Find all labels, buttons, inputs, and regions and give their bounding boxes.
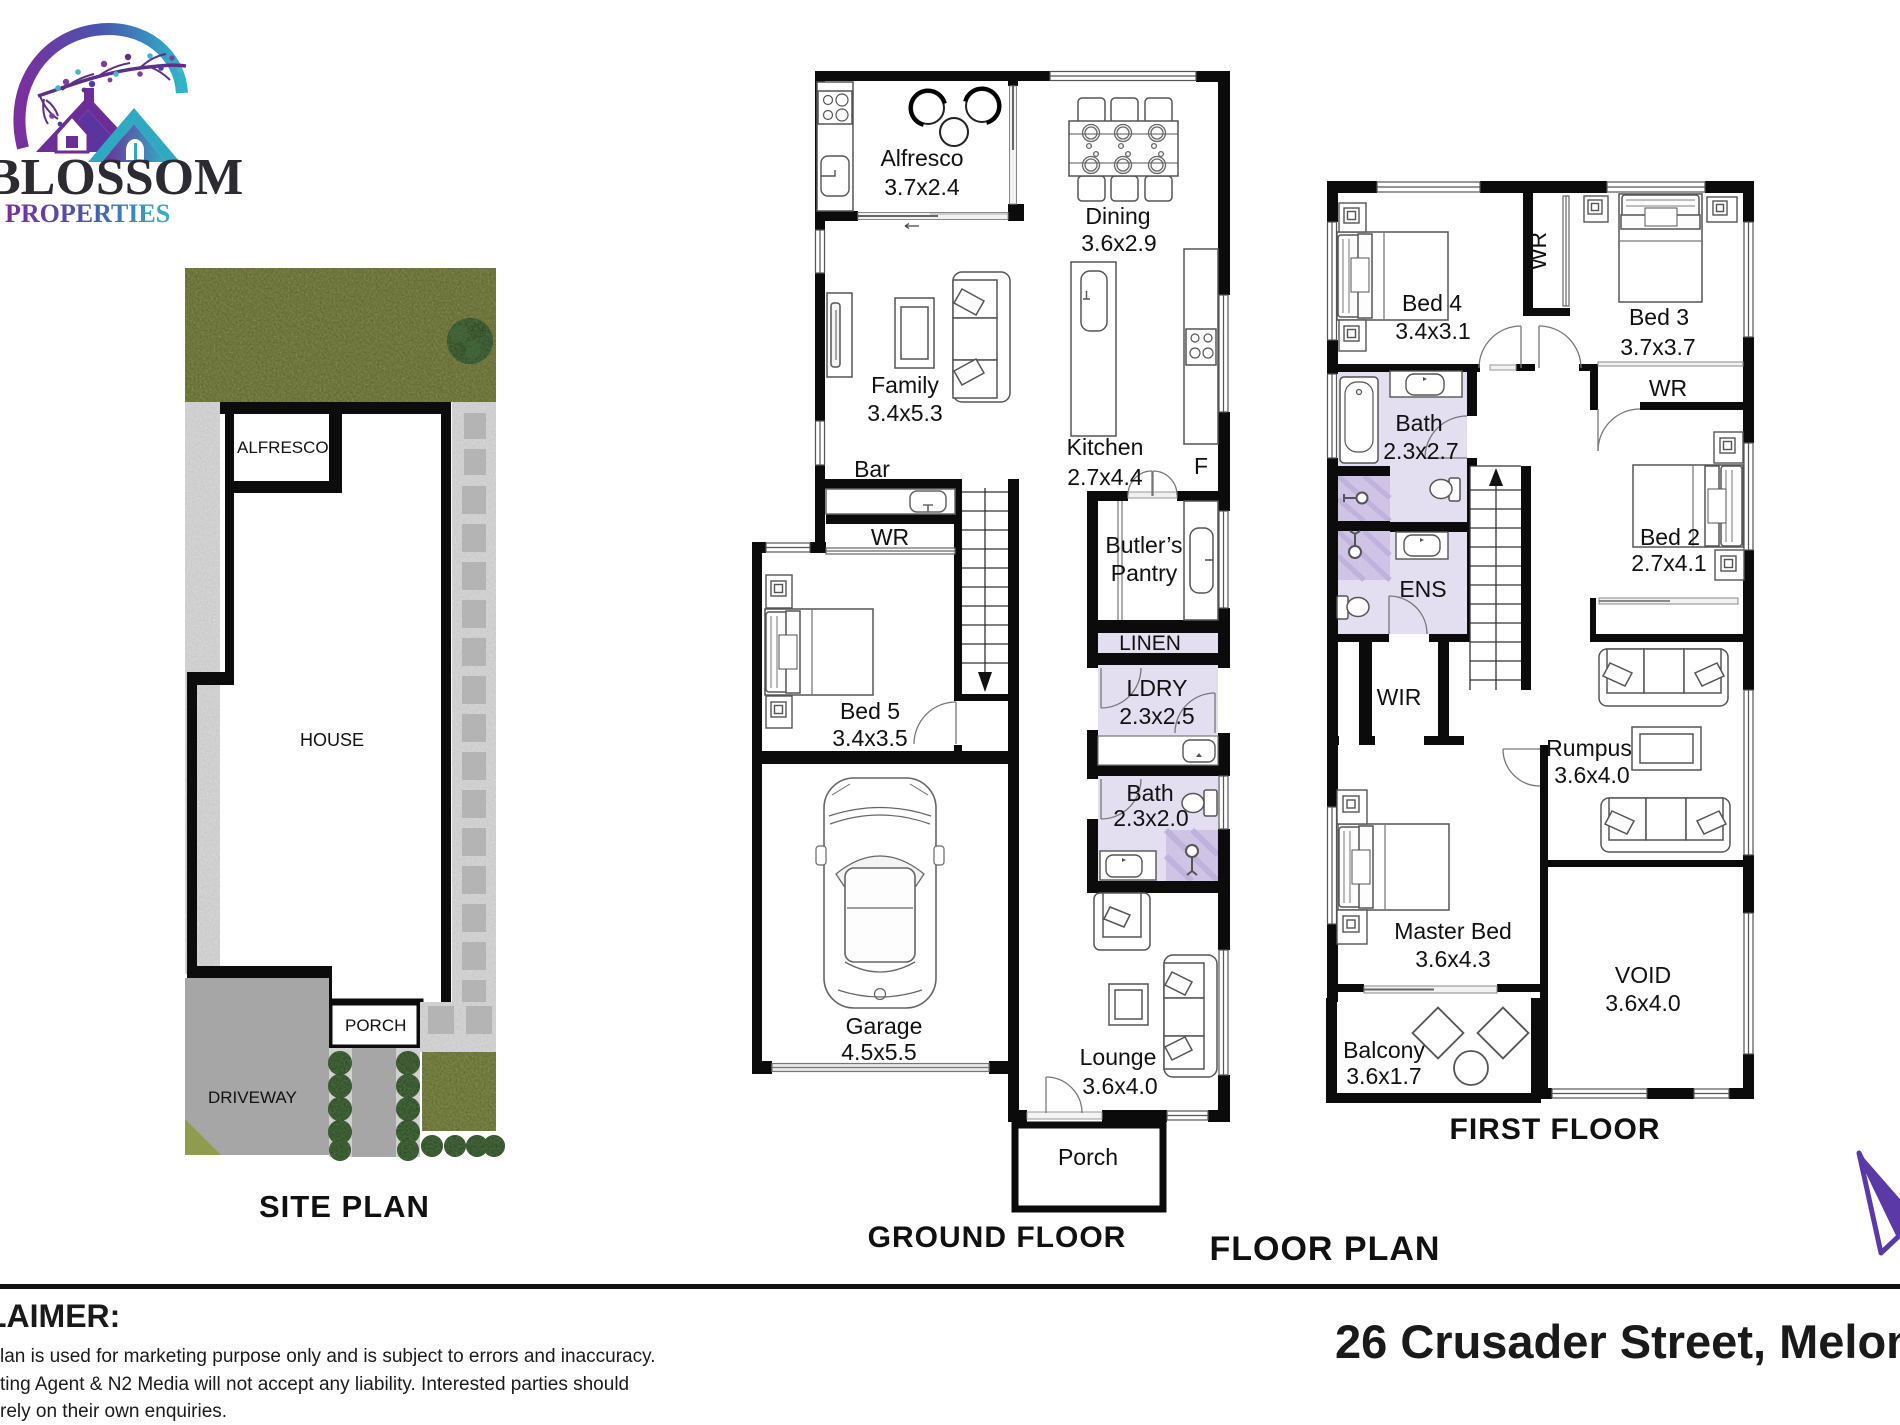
svg-text:Bar: Bar xyxy=(854,456,890,482)
svg-text:Garage: Garage xyxy=(846,1013,923,1039)
svg-text:3.7x2.4: 3.7x2.4 xyxy=(884,174,960,200)
svg-text:BLOSSOM: BLOSSOM xyxy=(0,149,243,206)
svg-text:WR: WR xyxy=(1649,375,1687,401)
svg-text:26 Crusader Street, Melonba: 26 Crusader Street, Melonba xyxy=(1335,1315,1900,1368)
svg-text:2.7x4.4: 2.7x4.4 xyxy=(1067,464,1143,490)
svg-text:FIRST FLOOR: FIRST FLOOR xyxy=(1450,1113,1661,1146)
svg-text:Master Bed: Master Bed xyxy=(1394,918,1512,944)
svg-text:LAIMER:: LAIMER: xyxy=(0,1298,120,1334)
svg-text:HOUSE: HOUSE xyxy=(300,730,364,750)
svg-text:PROPERTIES: PROPERTIES xyxy=(5,199,170,228)
svg-text:3.7x3.7: 3.7x3.7 xyxy=(1620,334,1695,360)
svg-text:3.6x4.0: 3.6x4.0 xyxy=(1082,1073,1157,1099)
svg-text:lan is used for marketing purp: lan is used for marketing purpose only a… xyxy=(0,1346,655,1367)
svg-text:2.3x2.0: 2.3x2.0 xyxy=(1113,805,1188,831)
svg-text:ALFRESCO: ALFRESCO xyxy=(237,438,329,457)
svg-text:F: F xyxy=(1194,453,1208,479)
svg-text:GROUND FLOOR: GROUND FLOOR xyxy=(868,1221,1127,1254)
svg-text:ting Agent & N2 Media will not: ting Agent & N2 Media will not accept an… xyxy=(0,1374,629,1395)
svg-text:Dining: Dining xyxy=(1085,203,1150,229)
svg-text:WIR: WIR xyxy=(1377,684,1422,710)
svg-text:Pantry: Pantry xyxy=(1111,560,1178,586)
svg-text:Lounge: Lounge xyxy=(1080,1044,1157,1070)
svg-text:3.6x4.0: 3.6x4.0 xyxy=(1605,990,1680,1016)
svg-text:Bed 5: Bed 5 xyxy=(840,698,900,724)
svg-text:Bath: Bath xyxy=(1395,410,1442,436)
svg-text:SITE PLAN: SITE PLAN xyxy=(259,1189,430,1224)
svg-text:3.6x4.3: 3.6x4.3 xyxy=(1415,946,1490,972)
svg-text:2.3x2.5: 2.3x2.5 xyxy=(1119,703,1194,729)
svg-text:DRIVEWAY: DRIVEWAY xyxy=(208,1088,297,1107)
svg-text:Balcony: Balcony xyxy=(1343,1037,1425,1063)
svg-text:3.6x2.9: 3.6x2.9 xyxy=(1081,230,1156,256)
svg-text:WR: WR xyxy=(871,524,909,550)
svg-text:ENS: ENS xyxy=(1399,576,1446,602)
svg-text:Kitchen: Kitchen xyxy=(1067,434,1144,460)
svg-text:2.7x4.1: 2.7x4.1 xyxy=(1631,550,1706,576)
svg-text:Bed 3: Bed 3 xyxy=(1629,304,1689,330)
svg-text:Family: Family xyxy=(871,372,939,398)
svg-text:FLOOR PLAN: FLOOR PLAN xyxy=(1210,1230,1441,1268)
svg-text:Bed 4: Bed 4 xyxy=(1402,290,1462,316)
svg-text:VOID: VOID xyxy=(1615,962,1671,988)
svg-text:3.6x4.0: 3.6x4.0 xyxy=(1554,762,1629,788)
svg-text:Butler’s: Butler’s xyxy=(1105,532,1182,558)
svg-text:2.3x2.7: 2.3x2.7 xyxy=(1383,438,1458,464)
svg-text:rely on their own enquiries.: rely on their own enquiries. xyxy=(0,1401,227,1422)
svg-text:LINEN: LINEN xyxy=(1119,632,1181,655)
svg-text:3.4x3.5: 3.4x3.5 xyxy=(832,725,907,751)
svg-text:PORCH: PORCH xyxy=(345,1016,406,1035)
svg-text:Rumpus: Rumpus xyxy=(1546,735,1632,761)
svg-text:3.6x1.7: 3.6x1.7 xyxy=(1346,1063,1421,1089)
svg-text:LDRY: LDRY xyxy=(1127,675,1188,701)
svg-text:3.4x3.1: 3.4x3.1 xyxy=(1395,318,1470,344)
svg-text:4.5x5.5: 4.5x5.5 xyxy=(841,1039,916,1065)
svg-text:3.4x5.3: 3.4x5.3 xyxy=(867,400,942,426)
svg-text:Bed 2: Bed 2 xyxy=(1640,524,1700,550)
svg-text:Alfresco: Alfresco xyxy=(880,145,963,171)
svg-text:Porch: Porch xyxy=(1058,1144,1118,1170)
svg-text:Bath: Bath xyxy=(1126,780,1173,806)
svg-text:WR: WR xyxy=(1525,232,1551,270)
